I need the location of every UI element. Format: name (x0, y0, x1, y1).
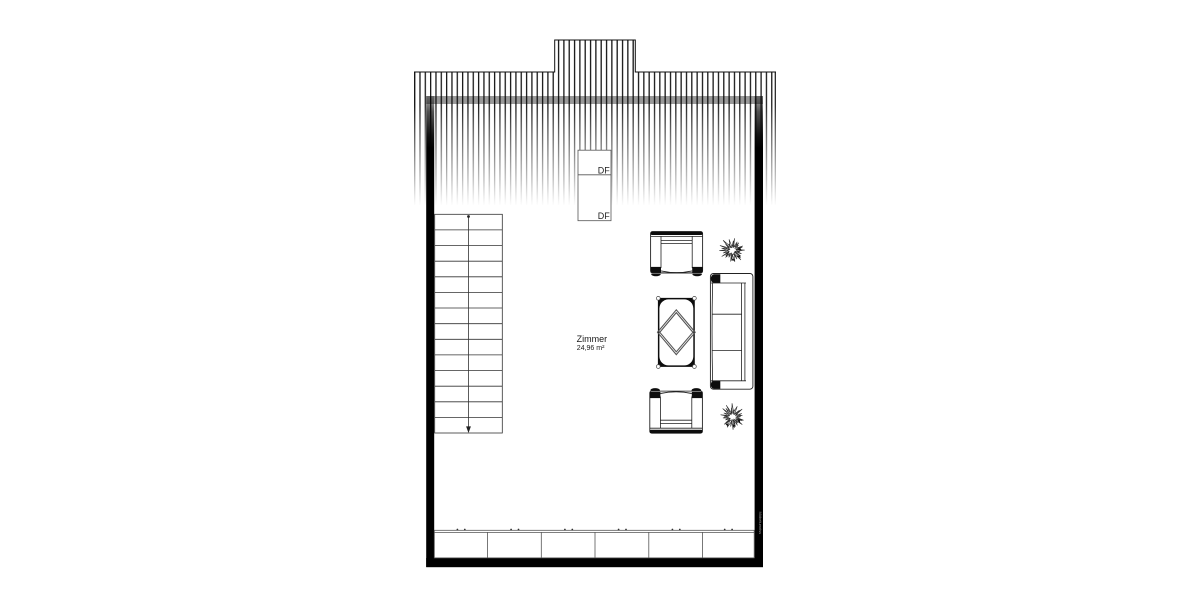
svg-text:Zimmer: Zimmer (577, 334, 608, 344)
svg-text:Möbelumriss: Möbelumriss (758, 512, 763, 535)
svg-text:24,96 m²: 24,96 m² (577, 345, 605, 352)
svg-text:DF: DF (598, 165, 610, 175)
svg-text:DF: DF (598, 211, 610, 221)
